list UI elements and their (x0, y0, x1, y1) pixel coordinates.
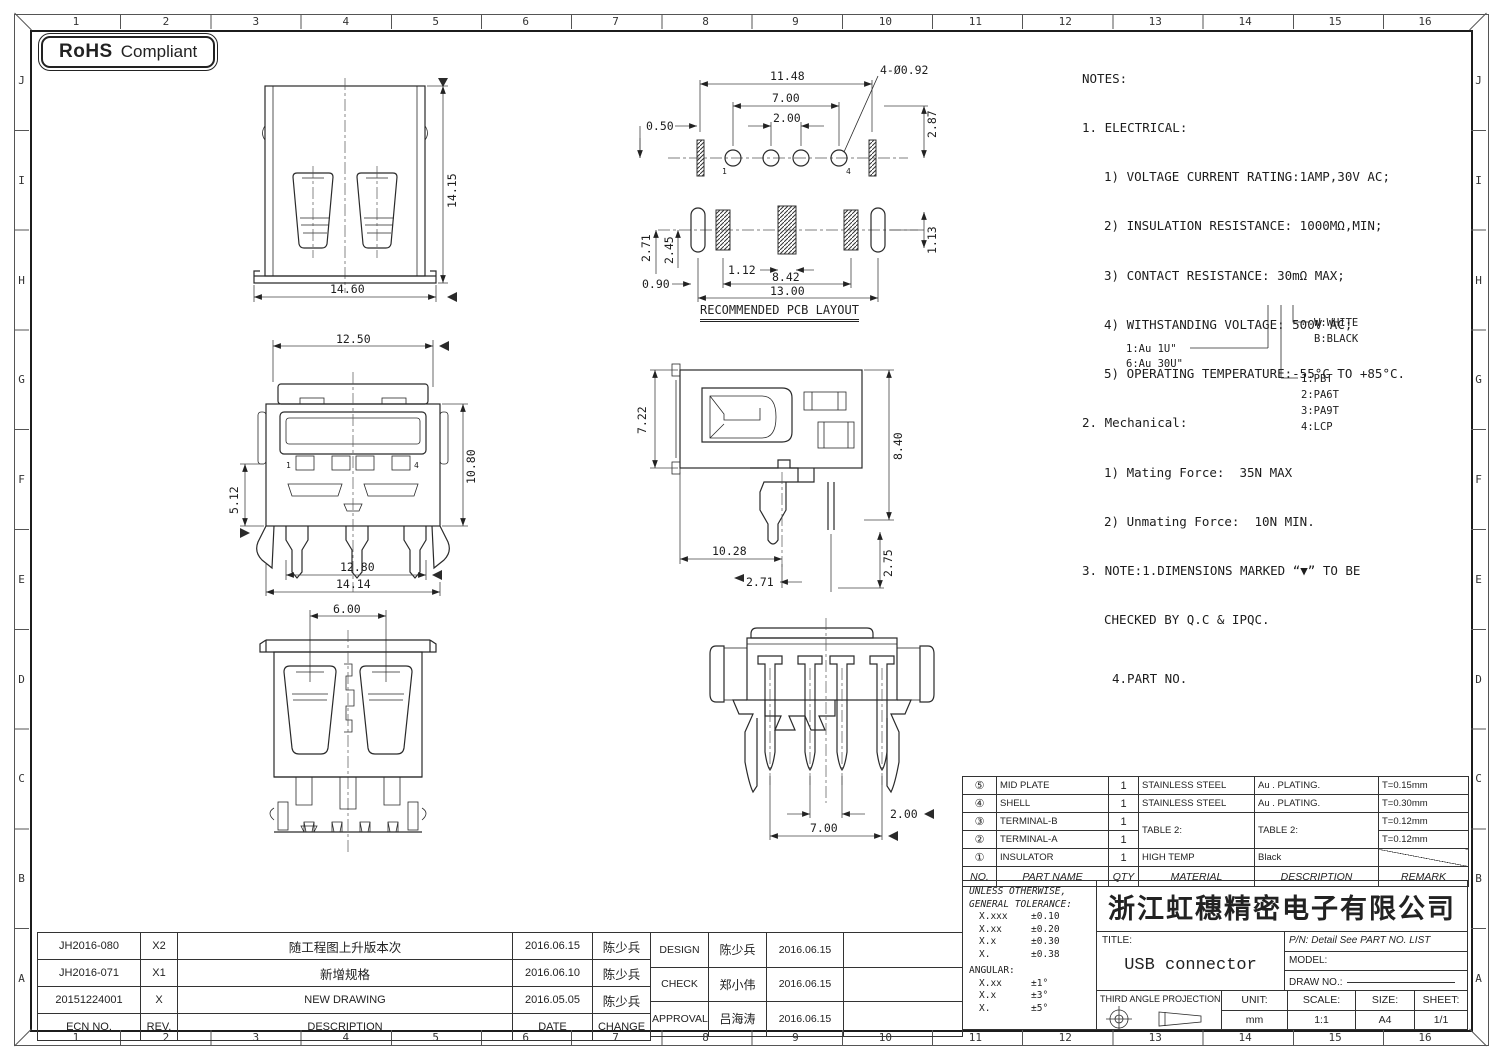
sheet-label: SHEET: (1415, 991, 1467, 1011)
grid-label: 10 (840, 15, 930, 28)
part-name: SHELL (997, 795, 1109, 813)
dim-0-90: 0.90 (642, 277, 670, 291)
grid-label: B (1471, 829, 1486, 929)
rev: X2 (141, 933, 178, 960)
table-row: ③ TERMINAL-B 1 TABLE 2: TABLE 2: T=0.12m… (963, 813, 1469, 831)
drawing-sheet: 12345678910111213141516 1234567891011121… (0, 0, 1502, 1059)
col-header: REV. (141, 1014, 178, 1041)
table-row: JH2016-080 X2 随工程图上升版本次 2016.06.15 陈少兵 (38, 933, 651, 960)
tol-val: ±0.10 (1031, 911, 1060, 924)
note-line: 4.PART NO. (1082, 671, 1487, 687)
part-qty: 1 (1109, 813, 1139, 831)
rev-description: 新增规格 (178, 960, 513, 987)
title-block: UNLESS OTHERWISE, GENERAL TOLERANCE: X.x… (962, 880, 1468, 1030)
approval-table: DESIGN 陈少兵 2016.06.15 CHECK 郑小伟 2016.06.… (650, 932, 963, 1037)
dim-10-80: 10.80 (464, 449, 478, 484)
rev-description: NEW DRAWING (178, 987, 513, 1014)
draw-no-blank (1347, 982, 1455, 983)
note-line: 3. NOTE:1.DIMENSIONS MARKED “▼” TO BE (1082, 563, 1487, 579)
part-name: MID PLATE (997, 777, 1109, 795)
part-no: ③ (963, 813, 997, 831)
rev-description: 随工程图上升版本次 (178, 933, 513, 960)
checked-dim-marker (439, 341, 449, 351)
part-material: HIGH TEMP (1139, 849, 1255, 867)
part-no: ④ (963, 795, 997, 813)
part-qty: 1 (1109, 795, 1139, 813)
size-label: SIZE: (1356, 991, 1414, 1011)
grid-label: A (14, 928, 29, 1028)
table-row: ① INSULATOR 1 HIGH TEMP Black (963, 849, 1469, 867)
part-qty: 1 (1109, 777, 1139, 795)
tol-key: X.xx (969, 924, 1031, 937)
pcb-pin1-label: 1 (722, 167, 727, 176)
angular-label: ANGULAR: (969, 965, 1090, 978)
approval-date: 2016.06.15 (767, 967, 844, 1002)
approval-name: 陈少兵 (709, 933, 767, 968)
dim-7-22: 7.22 (635, 406, 649, 434)
note-line: 2) INSULATION RESISTANCE: 1000MΩ,MIN; (1082, 218, 1487, 234)
legend-au6: 6:Au 30U" (1126, 358, 1183, 370)
table-row: JH2016-071 X1 新增规格 2016.06.10 陈少兵 (38, 960, 651, 987)
approval-blank (844, 1002, 963, 1037)
grid-label: 6 (481, 15, 571, 28)
ecn-no: 20151224001 (38, 987, 141, 1014)
grid-label: 12 (1020, 15, 1110, 28)
contact-1-label: 1 (286, 461, 291, 470)
approval-role: DESIGN (651, 933, 709, 968)
part-description: TABLE 2: (1255, 813, 1379, 849)
grid-label: 16 (1380, 15, 1470, 28)
grid-label: 1 (31, 15, 121, 28)
approval-blank (844, 933, 963, 968)
rev: X (141, 987, 178, 1014)
grid-label: E (14, 530, 29, 630)
company-name: 浙江虹穗精密电子有限公司 (1097, 881, 1467, 932)
rohs-rest-text: Compliant (121, 42, 198, 61)
legend-pbt: 1:PBT (1301, 373, 1333, 385)
grid-label: 14 (1200, 1031, 1290, 1044)
bottom-pins-view: 2.00 7.00 (662, 618, 947, 863)
dim-1-12: 1.12 (728, 263, 756, 277)
col-header: CHANGE (593, 1014, 651, 1041)
dim-2-71: 2.71 (639, 234, 653, 262)
grid-label: H (14, 230, 29, 330)
draw-no-label: DRAW NO.: (1289, 977, 1343, 988)
grid-label: 3 (211, 15, 301, 28)
table-header-row: ECN NO. REV. DESCRIPTION DATE CHANGE (38, 1014, 651, 1041)
note-line: CHECKED BY Q.C & IPQC. (1082, 612, 1487, 628)
part-material: STAINLESS STEEL (1139, 777, 1255, 795)
part-name: TERMINAL-B (997, 813, 1109, 831)
legend-au1: 1:Au 1U" (1126, 343, 1177, 355)
rev-date: 2016.06.10 (513, 960, 593, 987)
tolerance-line: UNLESS OTHERWISE, (969, 886, 1090, 899)
grid-label: 7 (571, 15, 661, 28)
scale-label: SCALE: (1288, 991, 1355, 1011)
tol-val: ±1° (1031, 978, 1048, 991)
note-line: 1) Mating Force: 35N MAX (1082, 465, 1487, 481)
ecn-no: JH2016-080 (38, 933, 141, 960)
tol-key: X.x (969, 936, 1031, 949)
part-description: Au . PLATING. (1255, 795, 1379, 813)
tol-key: X. (969, 1003, 1031, 1016)
receptacle-front-view: 12.50 1 4 10.80 5.12 12.80 14.14 (228, 332, 483, 600)
dim-7-00: 7.00 (772, 91, 800, 105)
approval-name: 吕海涛 (709, 1002, 767, 1037)
grid-label: G (14, 330, 29, 430)
rohs-badge: RoHSCompliant (38, 33, 218, 71)
rev: X1 (141, 960, 178, 987)
grid-label: F (14, 430, 29, 530)
grid-label: 5 (391, 15, 481, 28)
pcb-layout-label: RECOMMENDED PCB LAYOUT (700, 303, 859, 322)
part-remark-slash (1379, 849, 1469, 867)
dim-0-50: 0.50 (646, 119, 674, 133)
dim-13-00: 13.00 (770, 284, 805, 298)
part-no: ⑤ (963, 777, 997, 795)
ecn-no: JH2016-071 (38, 960, 141, 987)
parts-table: ⑤ MID PLATE 1 STAINLESS STEEL Au . PLATI… (962, 776, 1469, 887)
checked-dim-marker (447, 292, 457, 302)
note-line: 1) VOLTAGE CURRENT RATING:1AMP,30V AC; (1082, 169, 1487, 185)
tol-key: X.xxx (969, 911, 1031, 924)
grid-label: 8 (661, 15, 751, 28)
approval-role: APPROVAL (651, 1002, 709, 1037)
part-remark: T=0.12mm (1379, 813, 1469, 831)
grid-label: 9 (751, 15, 841, 28)
dim-2-00: 2.00 (890, 807, 918, 821)
table-row: CHECK 郑小伟 2016.06.15 (651, 967, 963, 1002)
revision-table: JH2016-080 X2 随工程图上升版本次 2016.06.15 陈少兵 J… (37, 932, 651, 1041)
side-view: 7.22 8.40 10.28 2.71 2.75 (632, 352, 922, 607)
part-no: ① (963, 849, 997, 867)
drawing-title: USB connector (1097, 956, 1284, 975)
part-name: TERMINAL-A (997, 831, 1109, 849)
tol-val: ±5° (1031, 1003, 1048, 1016)
dim-2-00: 2.00 (773, 111, 801, 125)
table-row: ④ SHELL 1 STAINLESS STEEL Au . PLATING. … (963, 795, 1469, 813)
rohs-bold-text: RoHS (59, 41, 113, 62)
dim-8-40: 8.40 (891, 432, 905, 460)
note-line: 3) CONTACT RESISTANCE: 30mΩ MAX; (1082, 268, 1487, 284)
tol-key: X. (969, 949, 1031, 962)
contact-4-label: 4 (414, 461, 419, 470)
grid-label: I (14, 131, 29, 231)
part-material: TABLE 2: (1139, 813, 1255, 849)
dim-2-45: 2.45 (662, 236, 676, 264)
pn-note: P/N: Detail See PART NO. LIST (1285, 932, 1467, 952)
tolerance-block: UNLESS OTHERWISE, GENERAL TOLERANCE: X.x… (963, 881, 1097, 1029)
dim-14-15: 14.15 (445, 173, 459, 208)
rev-change: 陈少兵 (593, 933, 651, 960)
tolerance-line: GENERAL TOLERANCE: (969, 899, 1090, 912)
part-number-legend: 1:Au 1U" 6:Au 30U" W:WHITE B:BLACK 1:PBT… (1118, 292, 1418, 447)
part-material: STAINLESS STEEL (1139, 795, 1255, 813)
table-row: APPROVAL 吕海涛 2016.06.15 (651, 1002, 963, 1037)
grid-label: 2 (121, 15, 211, 28)
table-row: DESIGN 陈少兵 2016.06.15 (651, 933, 963, 968)
scale-value: 1:1 (1288, 1011, 1355, 1030)
part-remark: T=0.15mm (1379, 777, 1469, 795)
rev-change: 陈少兵 (593, 960, 651, 987)
approval-blank (844, 967, 963, 1002)
front-view: 14.15 14.60 (250, 78, 470, 308)
legend-pa6t: 2:PA6T (1301, 389, 1340, 401)
tol-val: ±0.30 (1031, 936, 1060, 949)
part-remark: T=0.30mm (1379, 795, 1469, 813)
title-cell: TITLE: USB connector (1097, 932, 1285, 990)
dim-1-13: 1.13 (925, 226, 939, 254)
dim-11-48: 11.48 (770, 69, 805, 83)
checked-dim-marker (888, 831, 898, 841)
part-qty: 1 (1109, 849, 1139, 867)
grid-label: 16 (1380, 1031, 1470, 1044)
part-no: ② (963, 831, 997, 849)
grid-label: 11 (930, 15, 1020, 28)
grid-label: 14 (1200, 15, 1290, 28)
projection-cell: THIRD ANGLE PROJECTION (1097, 991, 1222, 1029)
tol-val: ±3° (1031, 990, 1048, 1003)
dim-2-87: 2.87 (925, 110, 939, 138)
pcb-pin4-label: 4 (846, 167, 851, 176)
grid-label: 15 (1290, 15, 1380, 28)
col-header: ECN NO. (38, 1014, 141, 1041)
size-value: A4 (1356, 1011, 1414, 1030)
dim-5-12: 5.12 (228, 486, 241, 514)
part-remark: T=0.12mm (1379, 831, 1469, 849)
checked-dim-marker (240, 528, 250, 538)
rev-change: 陈少兵 (593, 987, 651, 1014)
dim-14-60: 14.60 (330, 282, 365, 296)
dim-12-80: 12.80 (340, 560, 375, 574)
col-header: DATE (513, 1014, 593, 1041)
grid-col-labels-top: 12345678910111213141516 (31, 14, 1470, 29)
part-name: INSULATOR (997, 849, 1109, 867)
rev-date: 2016.06.15 (513, 933, 593, 960)
tol-key: X.xx (969, 978, 1031, 991)
table-row: 20151224001 X NEW DRAWING 2016.05.05 陈少兵 (38, 987, 651, 1014)
grid-label: A (1471, 928, 1486, 1028)
rear-view: 6.00 (238, 602, 463, 857)
dim-8-42: 8.42 (772, 270, 800, 284)
table-row: ⑤ MID PLATE 1 STAINLESS STEEL Au . PLATI… (963, 777, 1469, 795)
model-label: MODEL: (1285, 952, 1467, 972)
dim-7-00: 7.00 (810, 821, 838, 835)
legend-lcp: 4:LCP (1301, 421, 1333, 433)
grid-row-labels-left: JIHGFEDCBA (14, 31, 29, 1028)
grid-label: C (14, 729, 29, 829)
part-description: Au . PLATING. (1255, 777, 1379, 795)
grid-label: C (1471, 729, 1486, 829)
note-line: 2) Unmating Force: 10N MIN. (1082, 514, 1487, 530)
grid-label: 4 (301, 15, 391, 28)
part-description: Black (1255, 849, 1379, 867)
grid-label: 15 (1290, 1031, 1380, 1044)
part-qty: 1 (1109, 831, 1139, 849)
dim-6-00: 6.00 (333, 602, 361, 616)
col-header: DESCRIPTION (178, 1014, 513, 1041)
unit-value: mm (1222, 1011, 1287, 1030)
grid-label: J (14, 31, 29, 131)
legend-white: W:WHITE (1314, 317, 1358, 329)
callout-holes: 4-Ø0.92 (880, 63, 928, 77)
note-line: 1. ELECTRICAL: (1082, 120, 1487, 136)
legend-black: B:BLACK (1314, 333, 1359, 345)
grid-label: D (14, 629, 29, 729)
unit-label: UNIT: (1222, 991, 1287, 1011)
grid-label: 12 (1020, 1031, 1110, 1044)
checked-dim-marker (924, 809, 934, 819)
note-line: NOTES: (1082, 71, 1487, 87)
rev-date: 2016.05.05 (513, 987, 593, 1014)
approval-role: CHECK (651, 967, 709, 1002)
dim-2-75: 2.75 (881, 549, 895, 577)
checked-dim-marker (734, 574, 744, 582)
dim-2-71: 2.71 (746, 575, 774, 589)
dim-12-50: 12.50 (336, 332, 371, 346)
projection-symbol-icon (1101, 1006, 1221, 1032)
title-label: TITLE: (1102, 935, 1132, 946)
tol-key: X.x (969, 990, 1031, 1003)
dim-10-28: 10.28 (712, 544, 747, 558)
tol-val: ±0.38 (1031, 949, 1060, 962)
approval-date: 2016.06.15 (767, 1002, 844, 1037)
grid-label: B (14, 829, 29, 929)
pcb-layout-view: 1 4 11.48 7.00 2.00 0.50 4-Ø0.92 2.87 2.… (628, 62, 960, 302)
legend-pa9t: 3:PA9T (1301, 405, 1340, 417)
projection-label: THIRD ANGLE PROJECTION (1100, 994, 1221, 1004)
approval-name: 郑小伟 (709, 967, 767, 1002)
dim-14-14: 14.14 (336, 577, 371, 591)
grid-label: 13 (1110, 15, 1200, 28)
sheet-value: 1/1 (1415, 1011, 1467, 1030)
tol-val: ±0.20 (1031, 924, 1060, 937)
checked-dim-marker (432, 570, 442, 580)
approval-date: 2016.06.15 (767, 933, 844, 968)
grid-label: 13 (1110, 1031, 1200, 1044)
